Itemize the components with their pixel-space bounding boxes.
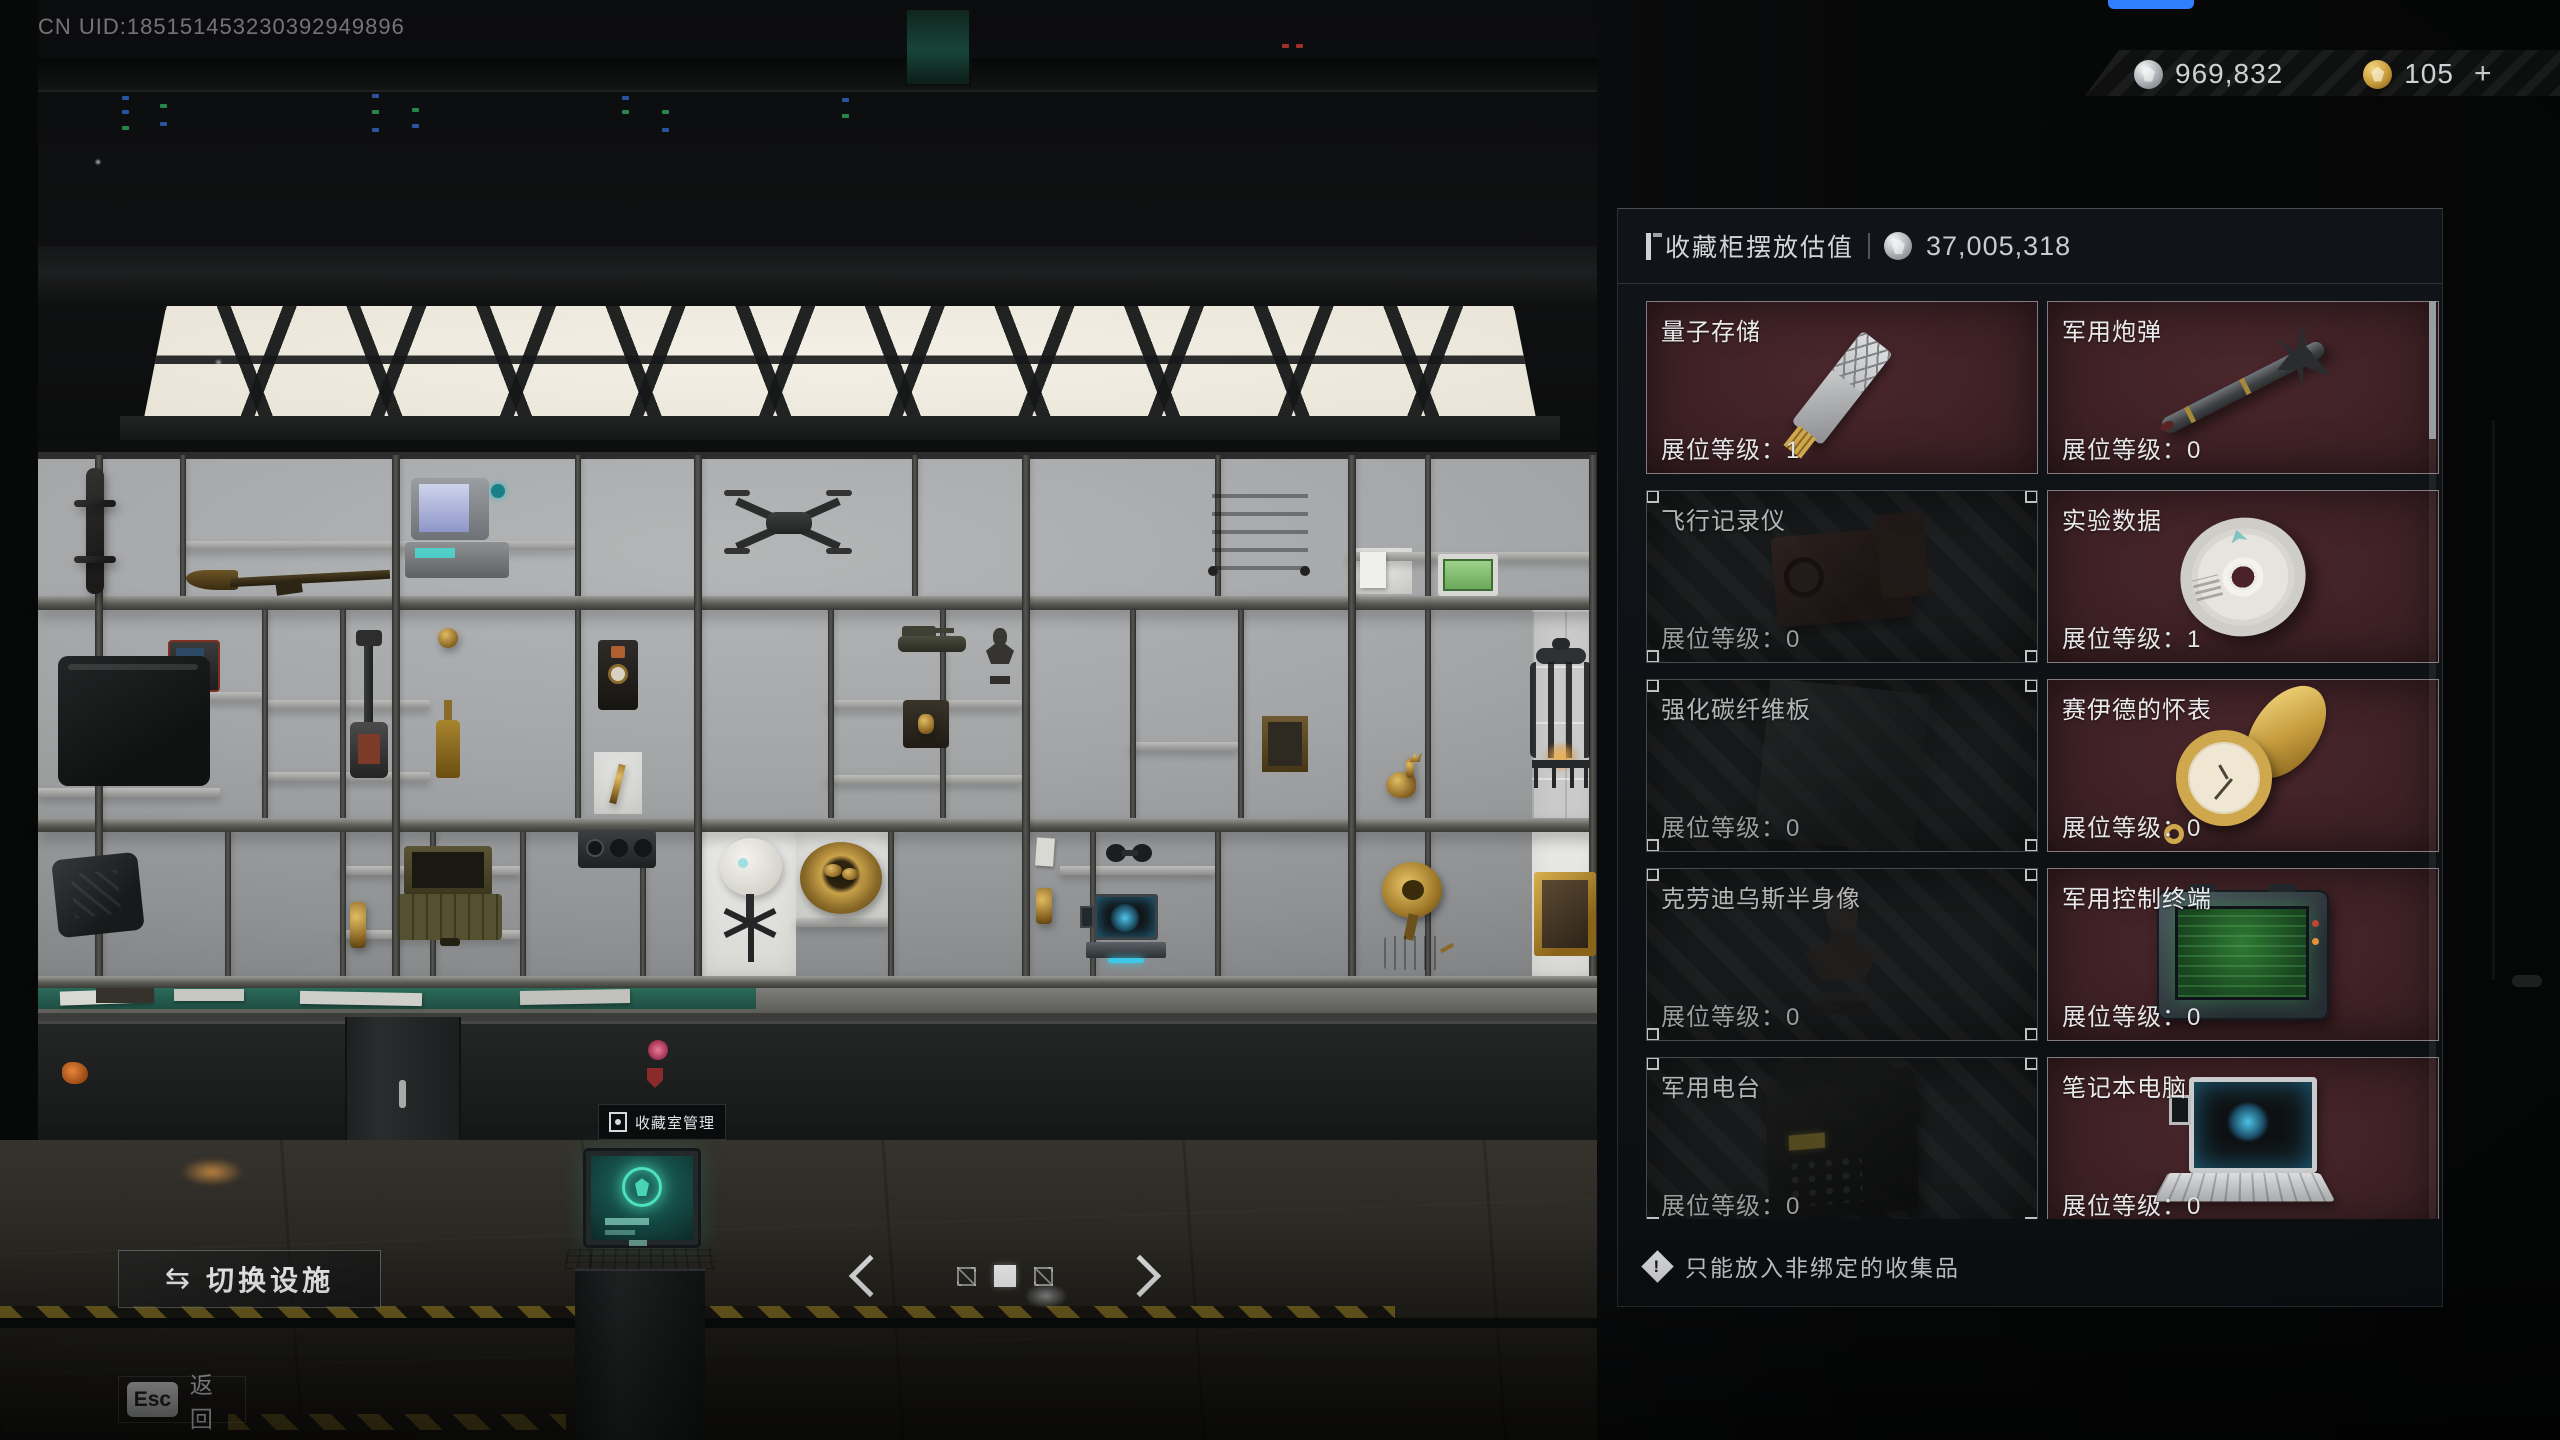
- currency-bar: 969,832 105 +: [2134, 54, 2491, 94]
- shelf-post: [575, 455, 581, 596]
- collection-item-grid: 量子存储 展位等级：1 军用炮弹 展位等级：0 飞行记录仪 展位等级：0 实验数…: [1646, 301, 2439, 1219]
- wall-monitor: [905, 8, 971, 86]
- kiosk-screen-content: [591, 1156, 693, 1240]
- item-name: 强化碳纤维板: [1661, 690, 1811, 725]
- title-tick-icon: [1646, 233, 1651, 260]
- facility-dot-active[interactable]: [994, 1265, 1016, 1287]
- kiosk-interaction-prompt[interactable]: 收藏室管理: [598, 1104, 726, 1140]
- slot-level: 展位等级：0: [1661, 997, 1800, 1032]
- shelf-post: [340, 832, 346, 976]
- display-item-watch-plaque: [598, 640, 638, 710]
- sub-shelf: [1130, 742, 1238, 751]
- ceiling-beam: [0, 246, 1600, 304]
- kiosk-prompt-label: 收藏室管理: [635, 1112, 715, 1133]
- display-item-gramophone: [1370, 862, 1458, 974]
- display-item-brass-object: [1036, 888, 1052, 924]
- display-item-small-bust: [984, 628, 1016, 684]
- slot-level: 展位等级：1: [1661, 430, 1800, 465]
- sub-shelf: [180, 541, 575, 550]
- display-item-gpu-card: [578, 830, 656, 868]
- switch-facility-label: 切换设施: [206, 1259, 334, 1299]
- shelf-post: [1022, 455, 1030, 976]
- display-item-brass-part: [350, 902, 366, 948]
- player-uid: CN UID:185151453230392949896: [38, 14, 405, 40]
- slot-level: 展位等级：0: [1661, 619, 1800, 654]
- display-item-gold-frame: [1534, 872, 1596, 956]
- panel-title: 收藏柜摆放估值: [1665, 228, 1854, 264]
- facility-page-dots: [957, 1265, 1053, 1287]
- light-frame: [120, 416, 1560, 442]
- collection-card-4[interactable]: 实验数据 展位等级：1: [2047, 490, 2439, 663]
- shelf-post: [1348, 455, 1356, 976]
- shelf-post: [520, 832, 526, 976]
- slot-level: 展位等级：0: [2062, 808, 2201, 843]
- counter-paper: [520, 989, 630, 1005]
- slot-level: 展位等级：0: [2062, 1186, 2201, 1219]
- collection-card-1[interactable]: 量子存储 展位等级：1: [1646, 301, 2038, 474]
- collection-card-5[interactable]: 强化碳纤维板 展位等级：0: [1646, 679, 2038, 852]
- escape-back-control[interactable]: Esc 返回: [118, 1376, 246, 1423]
- door-seam: [2492, 420, 2495, 980]
- total-valuation: 37,005,318: [1926, 231, 2071, 262]
- display-item-monitor-device: [405, 478, 509, 578]
- collection-card-3[interactable]: 飞行记录仪 展位等级：0: [1646, 490, 2038, 663]
- header-divider: [1868, 233, 1870, 259]
- hazard-stripe: [228, 1414, 566, 1430]
- silver-coin-icon: [2134, 60, 2163, 89]
- floor-lamp-glow: [180, 1158, 244, 1186]
- next-facility-chevron[interactable]: [1119, 1255, 1161, 1297]
- item-name: 克劳迪乌斯半身像: [1661, 879, 1861, 914]
- sub-shelf: [1060, 866, 1215, 875]
- shelf-post: [1238, 610, 1244, 818]
- display-item-satellite-mic: [712, 838, 788, 970]
- shelf-post: [575, 610, 581, 818]
- display-item-missile-fin: [74, 500, 116, 507]
- server-lights: [122, 96, 129, 100]
- display-item-equipment-case: [398, 846, 502, 944]
- display-item-holo-laptop: [1080, 894, 1172, 968]
- display-item-bottle: [436, 700, 460, 778]
- shelf: [38, 818, 1597, 832]
- item-name: 赛伊德的怀表: [2062, 690, 2212, 725]
- display-item-portrait-card: [1360, 552, 1386, 588]
- shelf-post: [828, 610, 834, 818]
- shelf-post: [888, 832, 894, 976]
- display-item-binoculars: [1106, 842, 1154, 864]
- slot-level: 展位等级：0: [1661, 808, 1800, 843]
- add-currency-button[interactable]: +: [2474, 57, 2492, 91]
- shelf: [38, 596, 1597, 610]
- item-name: 实验数据: [2062, 501, 2162, 536]
- server-lights: [662, 110, 669, 114]
- display-item-drone: [722, 482, 854, 568]
- shelf-post: [912, 455, 918, 596]
- esc-keycap: Esc: [127, 1382, 178, 1417]
- display-item-robot-vacuum: [58, 656, 210, 786]
- header-separator: [1618, 283, 2442, 284]
- item-name: 飞行记录仪: [1661, 501, 1786, 536]
- display-item-green-screen: [1438, 554, 1498, 596]
- server-lights: [160, 104, 167, 108]
- sub-shelf: [38, 788, 220, 797]
- shelf-post: [262, 610, 268, 818]
- dust-speck: [96, 160, 100, 164]
- gold-currency-value: 105: [2404, 58, 2454, 90]
- locker-handle: [399, 1080, 406, 1108]
- item-name: 军用炮弹: [2062, 312, 2162, 347]
- alert-diamond-icon: !: [1641, 1250, 1674, 1283]
- display-item-golden-deer: [1376, 756, 1430, 806]
- silver-currency-value: 969,832: [2175, 58, 2283, 90]
- display-item-missile-vertical: [86, 468, 104, 594]
- display-item-ammo-crate: [1212, 488, 1308, 570]
- display-item-gold-coil: [438, 628, 458, 648]
- collection-card-9[interactable]: 军用电台 展位等级：0: [1646, 1057, 2038, 1219]
- shelf-post: [694, 455, 702, 976]
- panel-note: ! 只能放入非绑定的收集品: [1646, 1249, 1960, 1283]
- back-label: 返回: [190, 1366, 237, 1434]
- counter-book: [96, 988, 154, 1003]
- ceiling-light-panel: [144, 306, 1536, 418]
- kiosk-screen: [583, 1148, 701, 1248]
- server-lights: [622, 96, 629, 100]
- item-name: 量子存储: [1661, 312, 1761, 347]
- collection-card-7[interactable]: 克劳迪乌斯半身像 展位等级：0: [1646, 868, 2038, 1041]
- collection-card-2[interactable]: 军用炮弹 展位等级：0: [2047, 301, 2439, 474]
- sub-shelf: [796, 918, 889, 927]
- collection-card-10[interactable]: 笔记本电脑 展位等级：0: [2047, 1057, 2439, 1219]
- door-handle: [2512, 975, 2542, 987]
- kiosk-pedestal: [575, 1268, 705, 1440]
- display-item-stick-vacuum: [342, 630, 394, 786]
- gold-coin-icon: [2363, 60, 2392, 89]
- display-item-amulet-frame: [903, 700, 949, 748]
- cabinet-icon: [609, 1112, 627, 1132]
- kiosk-keyboard: [564, 1249, 718, 1270]
- server-lights: [372, 94, 379, 98]
- valuation-coin-icon: [1884, 232, 1912, 260]
- slot-level: 展位等级：0: [2062, 997, 2201, 1032]
- lower-cabinets: [38, 1021, 1597, 1142]
- indicator-lights: [1282, 44, 1289, 48]
- collection-card-8[interactable]: 军用控制终端 展位等级：0: [2047, 868, 2439, 1041]
- display-item-gold-pen: [600, 760, 636, 808]
- collection-card-6[interactable]: 赛伊德的怀表 展位等级：0: [2047, 679, 2439, 852]
- left-wall-edge: [0, 0, 38, 1140]
- display-item-missile-fin: [74, 556, 116, 563]
- flower-sticker: [648, 1040, 668, 1060]
- display-item-golden-nest: [800, 842, 882, 914]
- item-name: 笔记本电脑: [2062, 1068, 2187, 1103]
- slot-level: 展位等级：0: [1661, 1186, 1800, 1219]
- note-text: 只能放入非绑定的收集品: [1685, 1249, 1960, 1283]
- counter-paper: [300, 991, 422, 1006]
- counter-edge: [38, 1013, 1597, 1021]
- dust-speck: [216, 360, 221, 365]
- display-item-pouch: [55, 856, 141, 934]
- facility-dot-empty[interactable]: [957, 1267, 976, 1286]
- shelf-post: [225, 832, 231, 976]
- scrollbar-track[interactable]: [2429, 301, 2436, 1219]
- game-viewport: 收藏室管理 CN UID:185151453230392949896 969,8…: [0, 0, 2560, 1440]
- panel-header: 收藏柜摆放估值 37,005,318: [1646, 225, 2071, 267]
- slot-level: 展位等级：0: [2062, 430, 2201, 465]
- item-name: 军用控制终端: [2062, 879, 2212, 914]
- wall-trim: [38, 452, 1597, 459]
- display-item-tank-model: [898, 626, 966, 656]
- display-item-paper-slip: [1035, 837, 1055, 866]
- facility-dot-empty[interactable]: [1034, 1267, 1053, 1286]
- display-item-lantern: [1520, 648, 1602, 790]
- shelf-post: [1425, 455, 1431, 596]
- item-name: 军用电台: [1661, 1068, 1761, 1103]
- slot-level: 展位等级：1: [2062, 619, 2201, 654]
- shelf-post: [1130, 610, 1136, 818]
- switch-facility-button[interactable]: ⇆ 切换设施: [118, 1250, 381, 1308]
- server-lights: [842, 98, 849, 102]
- display-item-rifle: [186, 556, 390, 596]
- collection-cabinet-panel: 收藏柜摆放估值 37,005,318 量子存储 展位等级：1 军用炮弹 展位等级…: [1617, 208, 2443, 1307]
- facility-pager: [855, 1248, 1155, 1304]
- butterfly-sticker: [62, 1062, 88, 1084]
- counter-paper: [174, 989, 244, 1001]
- display-item-small-frame: [1262, 716, 1308, 772]
- prev-facility-chevron[interactable]: [849, 1255, 891, 1297]
- ceiling-catwalk: [0, 58, 1600, 92]
- swap-arrows-icon: ⇆: [165, 1264, 190, 1294]
- light-truss: [144, 306, 1536, 418]
- platform-edge: [0, 1318, 1600, 1328]
- server-lights: [412, 108, 419, 112]
- shelf: [38, 976, 1597, 988]
- shelf-post: [1215, 832, 1221, 976]
- sub-shelf: [828, 775, 1022, 784]
- kiosk-emblem: [622, 1167, 662, 1207]
- top-blue-indicator: [2108, 0, 2194, 9]
- scrollbar-thumb[interactable]: [2429, 301, 2436, 439]
